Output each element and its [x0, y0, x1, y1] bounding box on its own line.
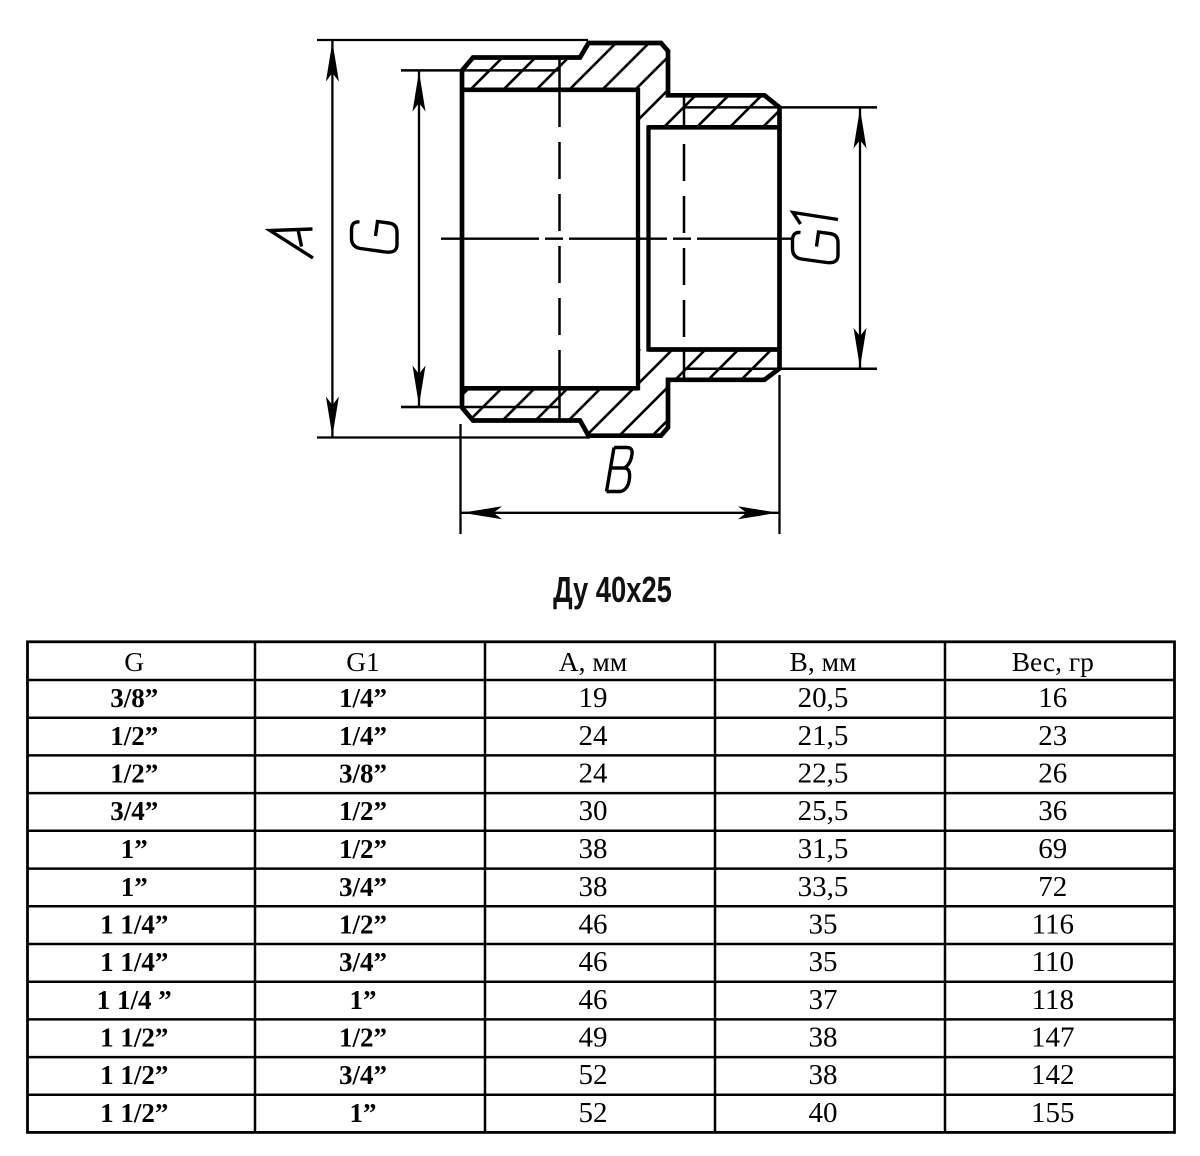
- svg-text:1”: 1”: [121, 834, 148, 864]
- svg-text:142: 142: [1031, 1059, 1075, 1091]
- svg-text:69: 69: [1038, 833, 1067, 865]
- svg-text:1/2”: 1/2”: [339, 909, 387, 939]
- svg-text:G: G: [124, 646, 144, 677]
- svg-text:35: 35: [809, 946, 838, 978]
- svg-text:20,5: 20,5: [798, 682, 849, 714]
- svg-text:22,5: 22,5: [798, 758, 849, 790]
- svg-text:155: 155: [1031, 1097, 1075, 1129]
- svg-text:3/4”: 3/4”: [339, 1060, 387, 1090]
- svg-text:В, мм: В, мм: [790, 646, 857, 677]
- svg-text:37: 37: [809, 984, 838, 1016]
- svg-text:1 1/4 ”: 1 1/4 ”: [97, 985, 172, 1015]
- svg-text:23: 23: [1038, 720, 1067, 752]
- svg-text:1 1/2”: 1 1/2”: [100, 1023, 168, 1053]
- svg-text:36: 36: [1038, 795, 1067, 827]
- svg-text:Вес, гр: Вес, гр: [1012, 646, 1094, 677]
- svg-text:3/8”: 3/8”: [339, 759, 387, 789]
- svg-text:21,5: 21,5: [798, 720, 849, 752]
- svg-text:1/2”: 1/2”: [339, 796, 387, 826]
- svg-text:1”: 1”: [121, 872, 148, 902]
- svg-text:31,5: 31,5: [798, 833, 849, 865]
- svg-text:38: 38: [579, 833, 608, 865]
- svg-text:147: 147: [1031, 1022, 1075, 1054]
- svg-text:1/2”: 1/2”: [339, 1023, 387, 1053]
- svg-text:52: 52: [579, 1097, 608, 1129]
- svg-text:1”: 1”: [350, 1098, 377, 1128]
- svg-text:26: 26: [1038, 758, 1067, 790]
- svg-text:3/4”: 3/4”: [110, 796, 158, 826]
- svg-text:38: 38: [809, 1022, 838, 1054]
- svg-text:72: 72: [1038, 871, 1067, 903]
- svg-text:24: 24: [579, 758, 609, 790]
- svg-text:30: 30: [579, 795, 608, 827]
- svg-text:1”: 1”: [350, 985, 377, 1015]
- svg-text:G1: G1: [346, 646, 380, 677]
- svg-text:35: 35: [809, 908, 838, 940]
- svg-text:118: 118: [1032, 984, 1074, 1016]
- svg-text:46: 46: [579, 984, 608, 1016]
- svg-text:46: 46: [579, 908, 608, 940]
- svg-text:116: 116: [1032, 908, 1074, 940]
- svg-text:33,5: 33,5: [798, 871, 849, 903]
- svg-text:16: 16: [1038, 682, 1067, 714]
- svg-text:38: 38: [579, 871, 608, 903]
- svg-text:1 1/2”: 1 1/2”: [100, 1060, 168, 1090]
- svg-text:1 1/2”: 1 1/2”: [100, 1098, 168, 1128]
- svg-text:3/8”: 3/8”: [110, 683, 158, 713]
- svg-text:1/2”: 1/2”: [339, 834, 387, 864]
- svg-text:1 1/4”: 1 1/4”: [100, 947, 168, 977]
- svg-text:3/4”: 3/4”: [339, 872, 387, 902]
- svg-text:1 1/4”: 1 1/4”: [100, 909, 168, 939]
- svg-text:1/4”: 1/4”: [339, 721, 387, 751]
- svg-text:1/2”: 1/2”: [110, 759, 158, 789]
- svg-text:52: 52: [579, 1059, 608, 1091]
- svg-text:1/2”: 1/2”: [110, 721, 158, 751]
- svg-text:А, мм: А, мм: [559, 646, 627, 677]
- svg-text:46: 46: [579, 946, 608, 978]
- svg-text:110: 110: [1032, 946, 1074, 978]
- svg-text:1/4”: 1/4”: [339, 683, 387, 713]
- svg-text:38: 38: [809, 1059, 838, 1091]
- svg-text:25,5: 25,5: [798, 795, 849, 827]
- svg-text:40: 40: [809, 1097, 838, 1129]
- svg-text:19: 19: [579, 682, 608, 714]
- svg-text:24: 24: [579, 720, 609, 752]
- svg-text:49: 49: [579, 1022, 608, 1054]
- svg-text:3/4”: 3/4”: [339, 947, 387, 977]
